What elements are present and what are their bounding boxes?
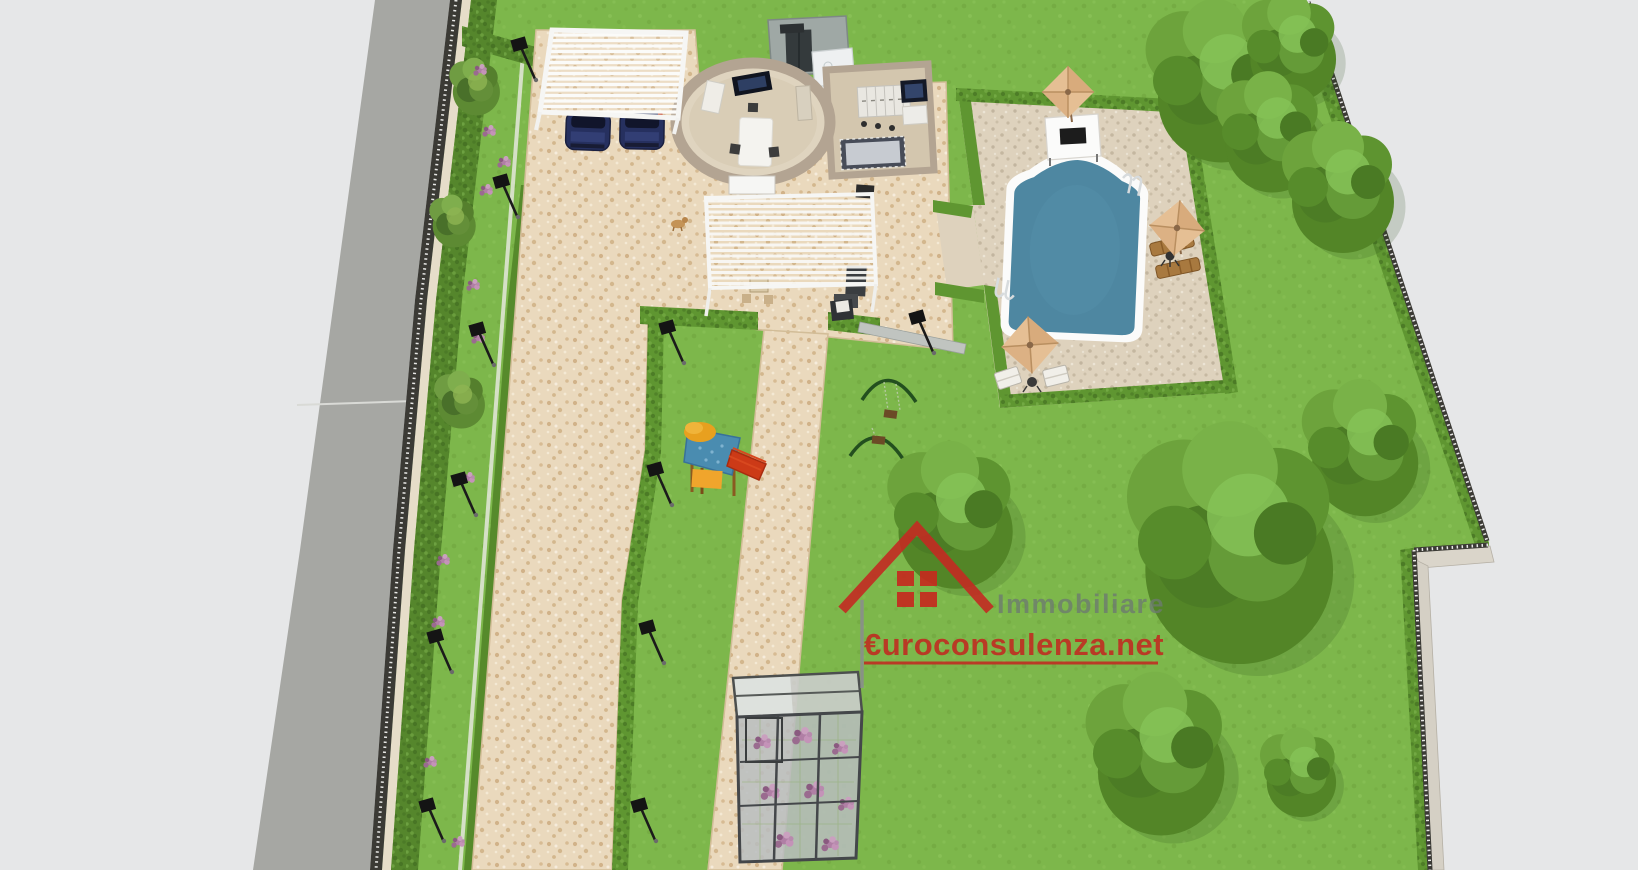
dining-table <box>738 117 773 166</box>
greenhouse <box>733 672 862 862</box>
watermark-line2: €uroconsulenza.net <box>864 627 1164 662</box>
chair <box>748 103 758 112</box>
rug <box>840 136 905 169</box>
tv-screen <box>900 79 927 103</box>
tv-console <box>902 105 927 125</box>
swimming-pool <box>994 147 1150 343</box>
watermark-line1: Immobiliare <box>997 589 1165 619</box>
scene-canvas: Immobiliare €uroconsulenza.net <box>0 0 1638 870</box>
chair <box>729 143 740 154</box>
chair <box>769 147 780 158</box>
property-3d-render: Immobiliare €uroconsulenza.net <box>0 0 1638 870</box>
house-wing <box>826 64 934 176</box>
entry-door <box>729 176 775 194</box>
shelf <box>796 86 812 121</box>
